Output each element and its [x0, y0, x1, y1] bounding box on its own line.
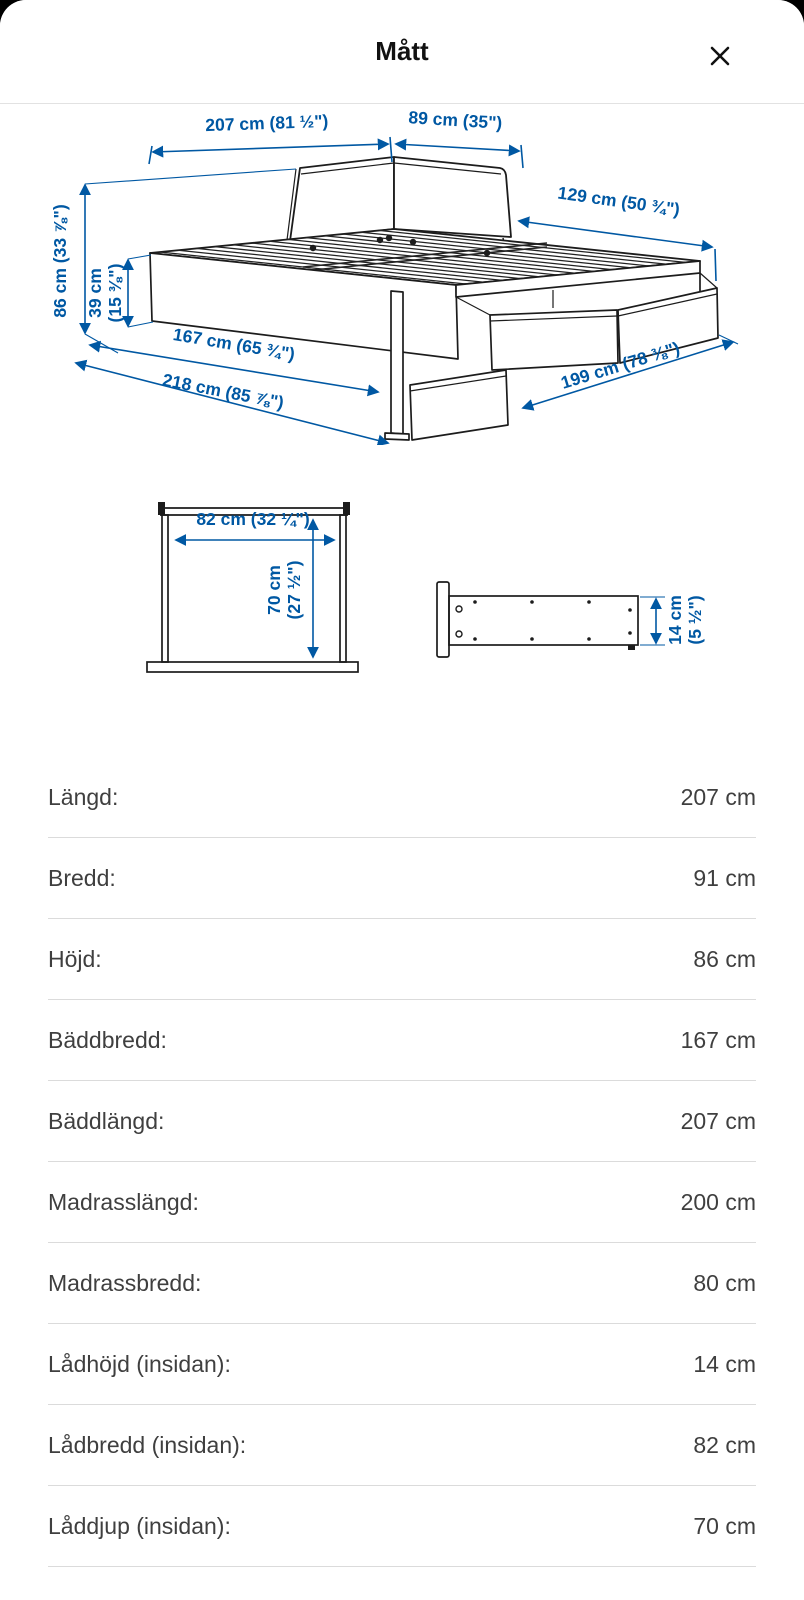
- dim-14-label: 14 cm(5 ½"): [665, 595, 705, 645]
- measurement-value: 200 cm: [681, 1189, 756, 1216]
- table-row: Bäddlängd:207 cm: [48, 1081, 756, 1162]
- dim-129-label: 129 cm (50 ¾"): [556, 183, 681, 220]
- table-row: Madrassbredd:80 cm: [48, 1243, 756, 1324]
- measurement-label: Bäddlängd:: [48, 1108, 164, 1135]
- dim-207-label: 207 cm (81 ½"): [205, 111, 329, 135]
- measurement-label: Lådhöjd (insidan):: [48, 1351, 231, 1378]
- measurement-label: Madrasslängd:: [48, 1189, 199, 1216]
- drawer-dimension-labels: 82 cm (32 ¼") 70 cm(27 ½") 14 cm(5 ½"): [196, 509, 705, 645]
- measurement-label: Låddjup (insidan):: [48, 1513, 231, 1540]
- measurement-label: Längd:: [48, 784, 118, 811]
- table-row: Längd:207 cm: [48, 757, 756, 838]
- measurement-label: Höjd:: [48, 946, 102, 973]
- table-row: Låddjup (insidan):70 cm: [48, 1486, 756, 1567]
- measurement-value: 80 cm: [693, 1270, 756, 1297]
- table-row: Bredd:91 cm: [48, 838, 756, 919]
- measurement-value: 207 cm: [681, 1108, 756, 1135]
- measurement-value: 86 cm: [693, 946, 756, 973]
- modal-header: Mått: [0, 0, 804, 104]
- page-title: Mått: [0, 0, 804, 103]
- table-row: Höjd:86 cm: [48, 919, 756, 1000]
- support-leg: [391, 291, 403, 434]
- measurement-value: 91 cm: [693, 865, 756, 892]
- measurement-value: 14 cm: [693, 1351, 756, 1378]
- dimensions-modal: Mått: [0, 0, 804, 1600]
- dim-70-label: 70 cm(27 ½"): [264, 561, 304, 620]
- table-row: Bäddbredd:167 cm: [48, 1000, 756, 1081]
- drawer-side-view: [437, 582, 638, 657]
- drawer-dimension-lines: [176, 520, 665, 657]
- table-row: Madrasslängd:200 cm: [48, 1162, 756, 1243]
- modal-sheet: Mått: [0, 0, 804, 1600]
- dim-218-label: 218 cm (85 ⅞"): [161, 370, 286, 413]
- measurement-value: 207 cm: [681, 784, 756, 811]
- dim-82-label: 82 cm (32 ¼"): [196, 509, 309, 529]
- backrest-panels: [290, 157, 511, 241]
- measurement-label: Bredd:: [48, 865, 116, 892]
- table-row: Lådbredd (insidan):82 cm: [48, 1405, 756, 1486]
- measurement-value: 70 cm: [693, 1513, 756, 1540]
- bed-dimensions-diagram: 207 cm (81 ½") 89 cm (35") 129 cm (50 ¾"…: [0, 105, 804, 445]
- dim-89-label: 89 cm (35"): [408, 107, 503, 133]
- close-button[interactable]: [700, 36, 740, 76]
- measurements-table: Längd:207 cm Bredd:91 cm Höjd:86 cm Bädd…: [48, 757, 756, 1567]
- measurement-value: 167 cm: [681, 1027, 756, 1054]
- measurement-label: Madrassbredd:: [48, 1270, 201, 1297]
- drawer-dimensions-diagram: 82 cm (32 ¼") 70 cm(27 ½") 14 cm(5 ½"): [0, 468, 804, 703]
- dim-39-label: 39 cm(15 ⅜"): [85, 264, 125, 323]
- table-row: Lådhöjd (insidan):14 cm: [48, 1324, 756, 1405]
- measurement-label: Bäddbredd:: [48, 1027, 167, 1054]
- close-icon: [705, 41, 735, 71]
- drawer-front-lower: [410, 370, 508, 440]
- measurement-value: 82 cm: [693, 1432, 756, 1459]
- dim-86-label: 86 cm (33 ⅞"): [50, 204, 70, 317]
- measurement-label: Lådbredd (insidan):: [48, 1432, 246, 1459]
